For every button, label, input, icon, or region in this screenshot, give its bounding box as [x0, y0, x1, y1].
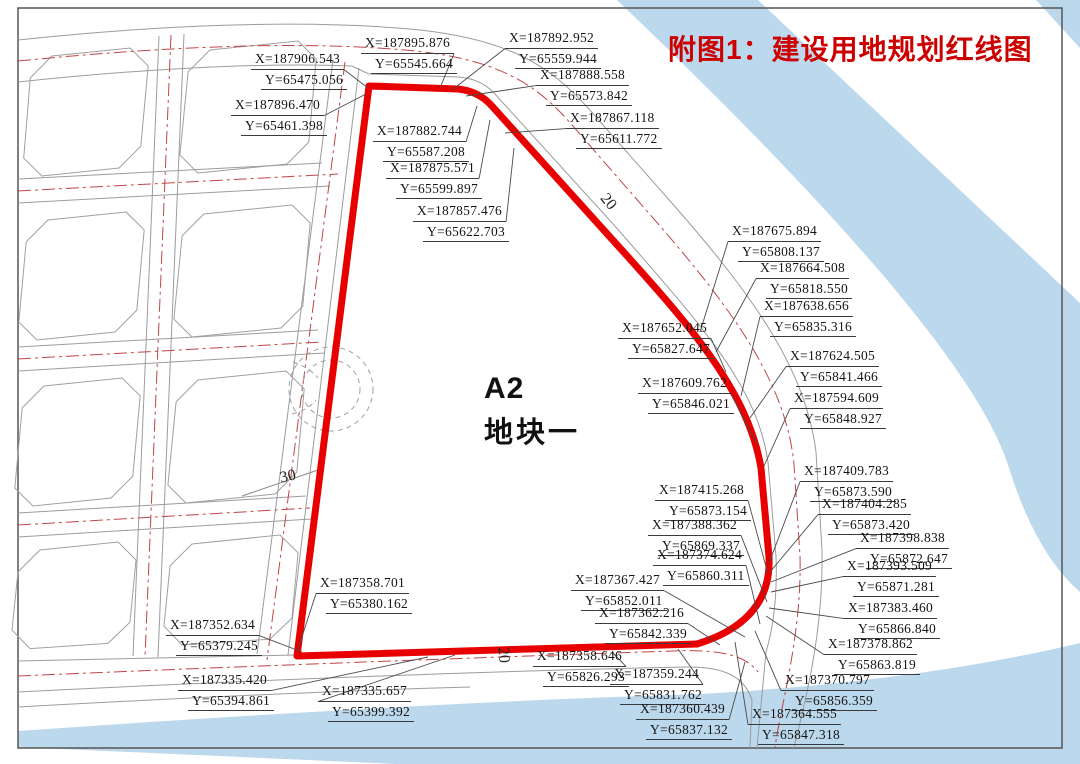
plan-sheet: 附图1：建设用地规划红线图 A2 地块一 X=187906.543Y=65475… — [0, 0, 1080, 764]
coord-y: Y=65842.339 — [605, 624, 691, 645]
coord-x: X=187362.216 — [595, 603, 688, 624]
parcel-name: 地块一 — [484, 409, 580, 451]
coord-y: Y=65461.398 — [241, 116, 327, 137]
page-title: 附图1：建设用地规划红线图 — [668, 28, 1068, 68]
parcel-label: A2 地块一 — [484, 372, 580, 451]
coord-label: X=187675.894Y=65808.137 — [728, 221, 824, 262]
coord-label: X=187638.656Y=65835.316 — [760, 296, 856, 337]
coord-label: X=187664.508Y=65818.550 — [756, 258, 852, 299]
coord-label: X=187352.634Y=65379.245 — [166, 615, 262, 656]
coord-x: X=187895.876 — [361, 33, 454, 54]
coord-x: X=187652.045 — [618, 318, 711, 339]
coord-y: Y=65545.664 — [371, 54, 457, 75]
coord-x: X=187875.571 — [386, 158, 479, 179]
coord-x: X=187888.558 — [536, 65, 629, 86]
coord-x: X=187404.285 — [818, 494, 911, 515]
coord-x: X=187409.783 — [800, 461, 893, 482]
road-width-label: 20 — [493, 646, 512, 663]
leader-line — [764, 409, 790, 466]
coord-x: X=187367.427 — [571, 570, 664, 591]
coord-label: X=187652.045Y=65827.647 — [618, 318, 714, 359]
coord-label: X=187335.657Y=65399.392 — [318, 681, 414, 722]
road-width-label: 30 — [278, 467, 297, 488]
coord-label: X=187892.952Y=65559.944 — [505, 28, 601, 69]
coord-label: X=187875.571Y=65599.897 — [386, 158, 482, 199]
leader-line — [769, 608, 844, 619]
coord-label: X=187364.555Y=65847.318 — [748, 704, 844, 745]
coord-x: X=187360.439 — [636, 699, 729, 720]
coord-y: Y=65622.703 — [423, 222, 509, 243]
coord-y: Y=65611.772 — [576, 129, 662, 150]
coord-y: Y=65475.056 — [261, 70, 347, 91]
coord-y: Y=65848.927 — [800, 409, 886, 430]
coord-x: X=187398.838 — [856, 528, 949, 549]
coord-x: X=187624.505 — [786, 346, 879, 367]
coord-label: X=187895.876Y=65545.664 — [361, 33, 457, 74]
coord-label: X=187594.609Y=65848.927 — [790, 388, 886, 429]
coord-x: X=187882.744 — [373, 121, 466, 142]
leader-line — [769, 482, 800, 563]
coord-x: X=187378.862 — [824, 634, 917, 655]
coord-label: X=187335.420Y=65394.861 — [178, 670, 274, 711]
coord-x: X=187358.701 — [316, 573, 409, 594]
coord-y: Y=65835.316 — [770, 317, 856, 338]
coord-x: X=187388.362 — [648, 515, 741, 536]
coord-y: Y=65399.392 — [328, 702, 414, 723]
coord-y: Y=65860.311 — [663, 566, 749, 587]
parcel-block — [15, 378, 140, 506]
coord-label: X=187362.216Y=65842.339 — [595, 603, 691, 644]
parcel-block — [24, 48, 149, 176]
coord-y: Y=65379.245 — [176, 636, 262, 657]
coord-label: X=187624.505Y=65841.466 — [786, 346, 882, 387]
coord-x: X=187364.555 — [748, 704, 841, 725]
coord-y: Y=65380.162 — [326, 594, 412, 615]
coord-y: Y=65841.466 — [796, 367, 882, 388]
coord-x: X=187335.420 — [178, 670, 271, 691]
parcel-block — [174, 205, 310, 337]
coord-y: Y=65846.021 — [648, 394, 734, 415]
coord-label: X=187896.470Y=65461.398 — [231, 95, 327, 136]
coord-label: X=187882.744Y=65587.208 — [373, 121, 469, 162]
coord-y: Y=65871.281 — [853, 577, 939, 598]
coord-x: X=187892.952 — [505, 28, 598, 49]
coord-y: Y=65827.647 — [628, 339, 714, 360]
coord-x: X=187383.460 — [844, 598, 937, 619]
leader-line — [324, 94, 366, 116]
coord-label: X=187393.509Y=65871.281 — [843, 556, 939, 597]
coord-x: X=187359.244 — [610, 664, 703, 685]
leader-line — [716, 279, 756, 352]
coord-y: Y=65837.132 — [646, 720, 732, 741]
coord-x: X=187664.508 — [756, 258, 849, 279]
coord-x: X=187638.656 — [760, 296, 853, 317]
coord-x: X=187335.657 — [318, 681, 411, 702]
coord-label: X=187857.476Y=65622.703 — [413, 201, 509, 242]
coord-x: X=187896.470 — [231, 95, 324, 116]
parcel-block — [12, 542, 136, 649]
coord-x: X=187594.609 — [790, 388, 883, 409]
parcel-code: A2 — [484, 372, 580, 406]
coord-label: X=187358.701Y=65380.162 — [316, 573, 412, 614]
parcel-block — [19, 212, 144, 340]
coord-x: X=187906.543 — [251, 49, 344, 70]
coord-y: Y=65394.861 — [188, 691, 274, 712]
coord-label: X=187360.439Y=65837.132 — [636, 699, 732, 740]
coord-x: X=187609.762 — [638, 373, 731, 394]
coord-label: X=187867.118Y=65611.772 — [566, 108, 662, 149]
leader-line — [770, 515, 818, 572]
coord-label: X=187383.460Y=65866.840 — [844, 598, 940, 639]
coord-y: Y=65599.897 — [396, 179, 482, 200]
leader-line — [755, 631, 781, 691]
leader-line — [771, 577, 843, 592]
coord-label: X=187906.543Y=65475.056 — [251, 49, 347, 90]
coord-x: X=187370.797 — [781, 670, 874, 691]
coord-y: Y=65573.842 — [546, 86, 632, 107]
leader-line — [766, 616, 824, 655]
coord-label: X=187378.862Y=65863.819 — [824, 634, 920, 675]
coord-label: X=187888.558Y=65573.842 — [536, 65, 632, 106]
coord-x: X=187675.894 — [728, 221, 821, 242]
leader-line — [731, 394, 757, 444]
coord-x: X=187393.509 — [843, 556, 936, 577]
coord-label: X=187609.762Y=65846.021 — [638, 373, 734, 414]
coord-y: Y=65847.318 — [758, 725, 844, 746]
coord-x: X=187374.624 — [653, 545, 746, 566]
leader-line — [750, 367, 786, 418]
coord-x: X=187867.118 — [566, 108, 659, 129]
coord-label: X=187374.624Y=65860.311 — [653, 545, 749, 586]
coord-x: X=187352.634 — [166, 615, 259, 636]
coord-x: X=187857.476 — [413, 201, 506, 222]
coord-x: X=187415.268 — [655, 480, 748, 501]
